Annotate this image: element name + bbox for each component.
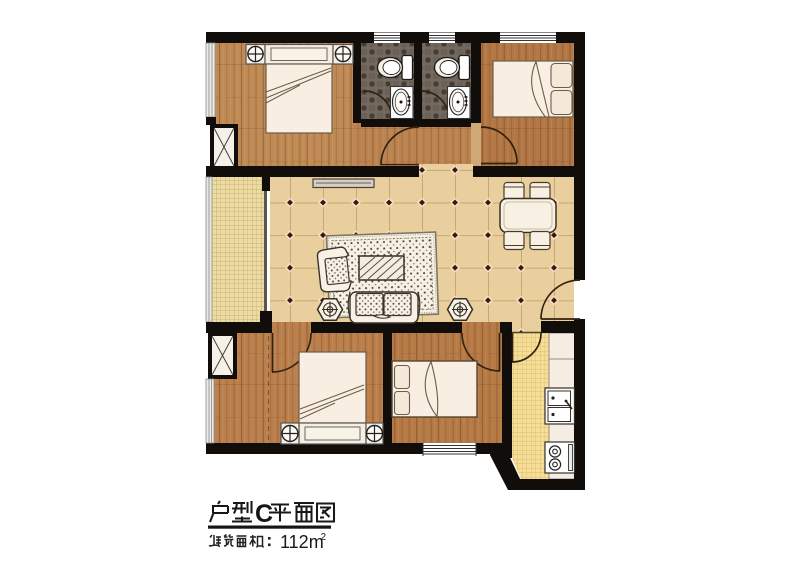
svg-text:2: 2 xyxy=(321,532,327,543)
svg-text:C: C xyxy=(255,500,273,528)
svg-text:112m: 112m xyxy=(280,532,324,552)
